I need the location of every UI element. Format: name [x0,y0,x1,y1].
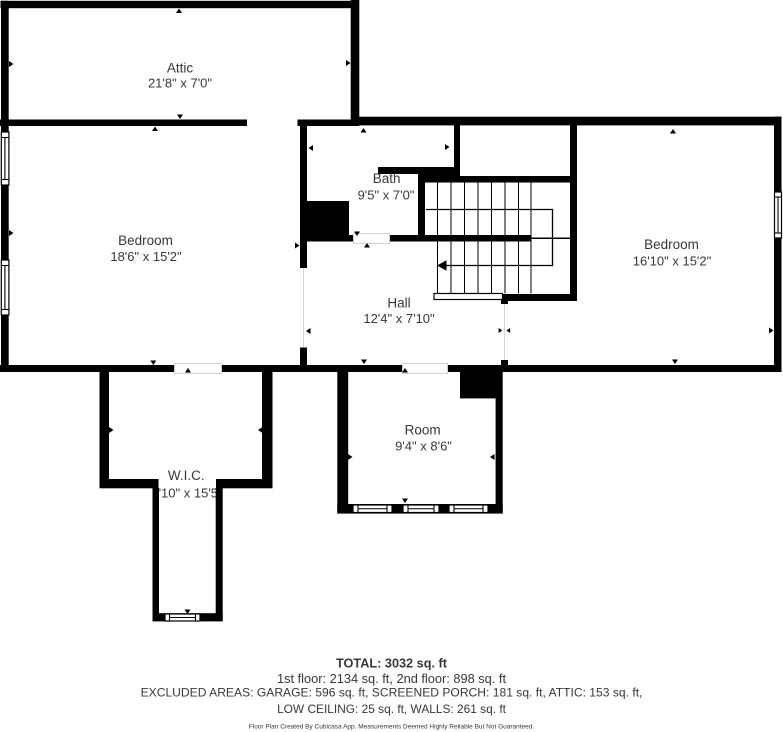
svg-text:7'10" x 15'5": 7'10" x 15'5" [151,486,223,501]
svg-text:9'5" x 7'0": 9'5" x 7'0" [358,188,415,203]
svg-text:18'6" x 15'2": 18'6" x 15'2" [110,249,182,264]
svg-text:EXCLUDED AREAS: GARAGE: 596 sq: EXCLUDED AREAS: GARAGE: 596 sq. ft, SCRE… [141,686,643,700]
svg-text:Room: Room [405,423,441,438]
svg-text:Bedroom: Bedroom [644,237,699,252]
svg-text:Attic: Attic [167,60,194,75]
svg-text:21'8" x 7'0": 21'8" x 7'0" [148,76,212,91]
svg-text:Floor Plan Created By Cubicasa: Floor Plan Created By Cubicasa App. Meas… [249,724,535,731]
svg-text:9'4" x 8'6": 9'4" x 8'6" [395,438,452,453]
svg-text:TOTAL: 3032 sq. ft: TOTAL: 3032 sq. ft [336,657,448,671]
svg-text:W.I.C.: W.I.C. [168,468,205,483]
svg-text:LOW CEILING: 25 sq. ft, WALLS:: LOW CEILING: 25 sq. ft, WALLS: 261 sq. f… [277,702,507,716]
svg-text:12'4" x 7'10": 12'4" x 7'10" [363,311,435,326]
svg-text:Bedroom: Bedroom [118,233,173,248]
svg-text:Bath: Bath [373,171,401,186]
svg-text:1st floor: 2134 sq. ft, 2nd fl: 1st floor: 2134 sq. ft, 2nd floor: 898 s… [277,671,507,686]
svg-text:Hall: Hall [387,296,410,311]
svg-text:16'10" x 15'2": 16'10" x 15'2" [633,254,712,269]
